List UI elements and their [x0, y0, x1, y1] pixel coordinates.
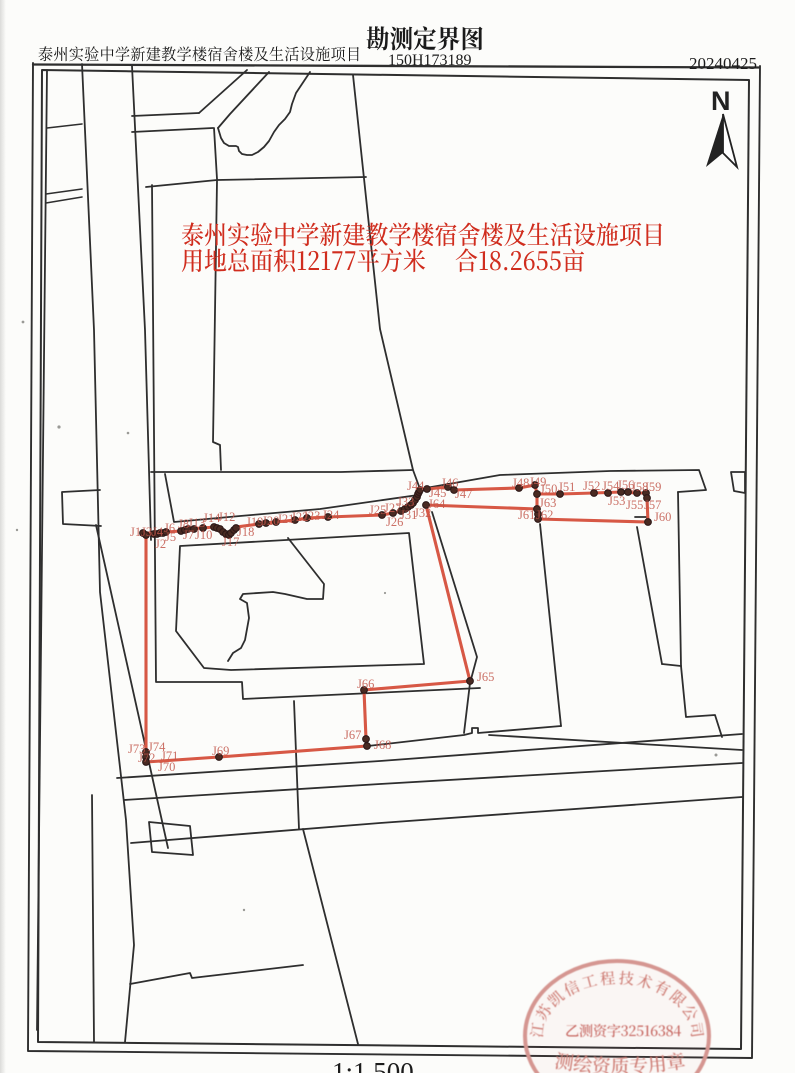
svg-text:N: N: [711, 86, 731, 116]
svg-text:J61: J61: [518, 508, 535, 522]
svg-text:J64: J64: [428, 497, 446, 511]
svg-text:J67: J67: [344, 728, 361, 742]
svg-text:J12: J12: [218, 510, 235, 524]
svg-text:J62: J62: [536, 508, 553, 522]
svg-text:20240425: 20240425: [689, 54, 757, 73]
svg-text:J69: J69: [212, 744, 229, 758]
svg-text:J33: J33: [397, 495, 414, 509]
svg-text:150H173189: 150H173189: [388, 52, 472, 69]
svg-text:J19: J19: [246, 515, 263, 529]
svg-text:J48: J48: [512, 476, 529, 490]
svg-text:J70: J70: [158, 760, 175, 774]
svg-text:J2: J2: [155, 537, 166, 551]
svg-text:J44: J44: [407, 479, 425, 493]
svg-text:J53: J53: [608, 494, 625, 508]
svg-text:J52: J52: [583, 479, 600, 493]
svg-text:J1: J1: [130, 525, 141, 539]
svg-text:J65: J65: [477, 670, 494, 684]
svg-text:J55: J55: [626, 498, 643, 512]
svg-text:J5: J5: [165, 530, 176, 544]
svg-text:J47: J47: [455, 487, 472, 501]
svg-text:J24: J24: [322, 508, 340, 522]
svg-text:J59: J59: [644, 480, 661, 494]
svg-text:J23: J23: [303, 509, 320, 523]
svg-text:J3: J3: [141, 525, 152, 539]
svg-text:J10: J10: [195, 528, 212, 542]
svg-text:J51: J51: [558, 480, 575, 494]
svg-text:J66: J66: [357, 677, 374, 691]
svg-text:J60: J60: [654, 510, 671, 524]
svg-text:J72: J72: [138, 751, 155, 765]
svg-text:J50: J50: [540, 482, 557, 496]
svg-text:1:1,500: 1:1,500: [332, 1057, 414, 1073]
svg-text:J68: J68: [374, 738, 391, 752]
svg-text:J63: J63: [539, 496, 556, 510]
